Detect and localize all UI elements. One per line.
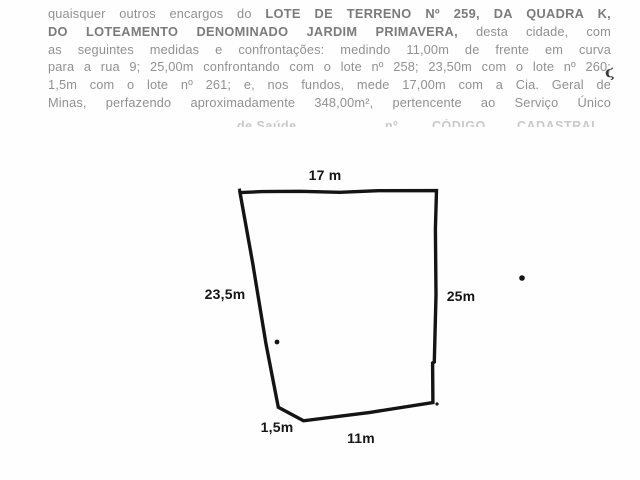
lot-sketch (0, 0, 640, 480)
dimension-label-bottom: 11m (347, 430, 375, 446)
lot-boundary (240, 191, 437, 421)
dimension-label-bottom-left: 1,5m (261, 419, 294, 435)
corner-dot (435, 402, 438, 405)
dimension-label-right: 25m (447, 288, 476, 304)
dimension-label-top: 17 m (309, 167, 342, 183)
dimension-label-left: 23,5m (205, 286, 246, 302)
corner-overshoot-stroke (239, 189, 241, 198)
interior-dot (275, 340, 280, 345)
scanned-deed-page: quaisquer outros encargos do LOTE DE TER… (0, 0, 640, 480)
outside-right-dot (519, 275, 525, 281)
